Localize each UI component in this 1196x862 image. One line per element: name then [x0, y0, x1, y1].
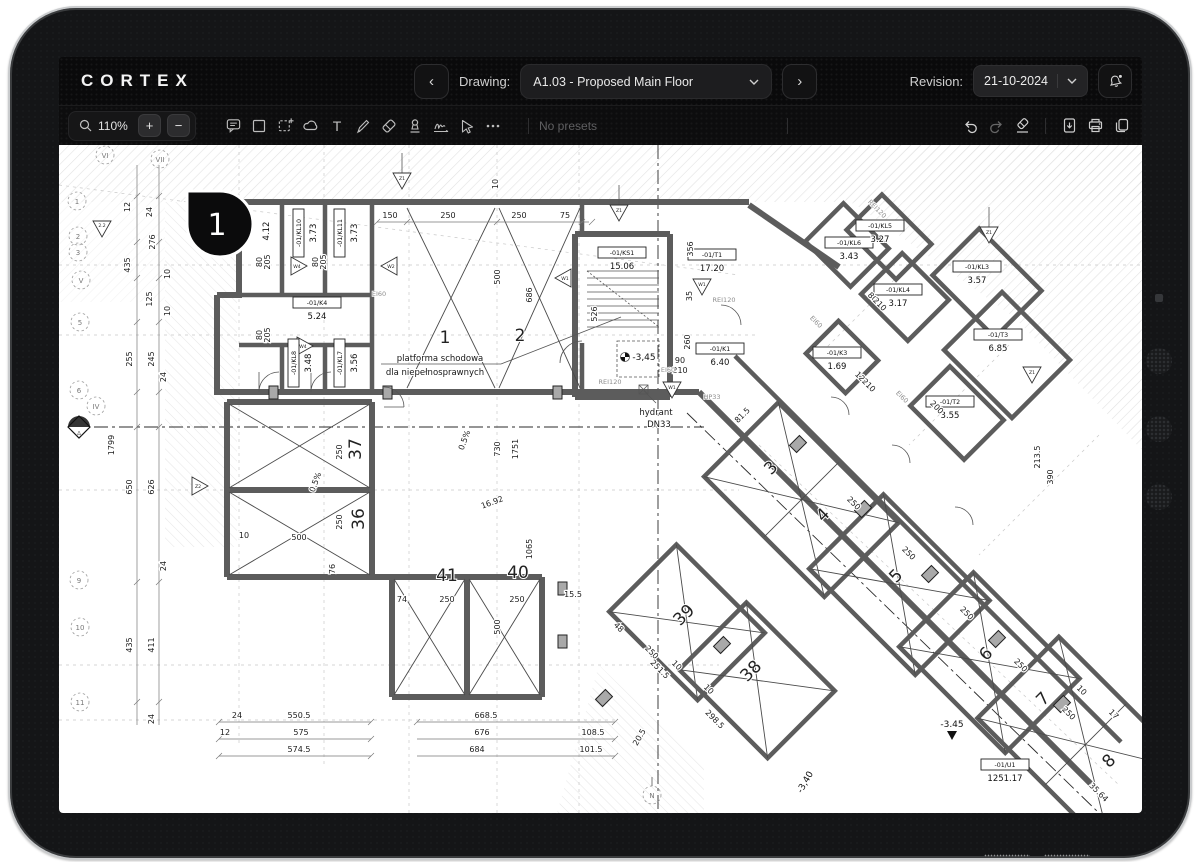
annotation-toolbar: 110% + − T No presets [59, 105, 1142, 145]
drawing-dropdown[interactable]: A1.03 - Proposed Main Floor [520, 64, 772, 99]
svg-text:W4: W4 [293, 264, 301, 270]
room-tag-area: 3.57 [968, 276, 987, 286]
room-number: 6 [975, 643, 997, 665]
app-logo: CORTEX [81, 71, 194, 91]
dim: 24 [145, 207, 154, 217]
grid-label: VII [156, 156, 165, 164]
redo-button[interactable] [983, 113, 1009, 139]
datum-marker: A [68, 416, 90, 438]
dim: 500 [291, 533, 306, 542]
note-hydrant-line2: DN33 [647, 420, 671, 430]
dim: 500 [493, 269, 502, 284]
print-button[interactable] [1082, 113, 1108, 139]
room-tag-area: 6.85 [989, 344, 1008, 354]
room-tag-area: 3.43 [840, 252, 859, 262]
comment-marker-number: 1 [207, 208, 226, 243]
svg-text:Z1: Z1 [986, 230, 992, 236]
room-number: 37 [346, 438, 366, 460]
text-tool-button[interactable]: T [324, 113, 350, 139]
dim: 10 [491, 179, 500, 189]
room-number: 1 [440, 328, 451, 348]
room-tag-id: -01/KL3 [965, 264, 989, 271]
grid-label: 1 [75, 198, 79, 206]
svg-text:W1: W1 [668, 385, 676, 391]
zoom-level: 110% [98, 119, 132, 133]
rectangle-tool-button[interactable] [246, 113, 272, 139]
dim: 1065 [525, 539, 534, 559]
svg-text:N: N [649, 792, 654, 800]
dim: 526 [590, 306, 599, 321]
dim: 500 [493, 619, 502, 634]
svg-text:EI60: EI60 [372, 290, 386, 298]
bezel-sensor [1155, 294, 1163, 302]
room-number: 36 [349, 508, 369, 530]
dim: 75 [560, 211, 570, 220]
svg-text:EI60: EI60 [661, 366, 675, 374]
room-tag-id: -01/K3 [827, 350, 848, 357]
grid-label: 6 [77, 387, 82, 395]
room-tag-area: 5.24 [308, 312, 327, 322]
dim: 250 [439, 595, 454, 604]
dim: 125 [145, 291, 154, 306]
drawing-nav-group: ‹ Drawing: A1.03 - Proposed Main Floor › [414, 64, 817, 99]
room-tag-id: -01/KL8 [291, 351, 298, 375]
dim: 210 [871, 296, 888, 313]
grid-label: V [79, 277, 84, 285]
speaker-grille-right [1044, 854, 1090, 857]
dim: 101.5 [580, 745, 603, 754]
room-tag-area: 6.40 [711, 358, 730, 368]
dim: 250 [335, 444, 344, 459]
note-platform-line1: platforma schodowa [397, 354, 483, 364]
toolbar-right-group [957, 113, 1142, 139]
room-tag-id: -01/KL5 [868, 223, 892, 230]
dim: 255 [125, 351, 134, 366]
room-tag-id: -01/KL7 [337, 351, 344, 375]
clear-annotations-button[interactable] [1009, 113, 1035, 139]
chevron-down-icon [749, 79, 759, 85]
svg-text:W4: W4 [299, 344, 307, 350]
dim: 245 [147, 351, 156, 366]
dim: 10 [163, 269, 172, 279]
room-tag-area: 17.20 [700, 264, 724, 274]
revision-label: Revision: [910, 74, 963, 89]
level-marker-stair: -3,45 [621, 353, 656, 364]
room-tag-id: -01/U1 [994, 762, 1015, 769]
grid-label: 5 [78, 319, 82, 327]
dim: 574.5 [288, 745, 311, 754]
drawing-canvas[interactable]: VI VII 1 2 3 V 5 6 IV 9 10 11 A [59, 145, 1142, 813]
dim: 356 [686, 241, 695, 256]
room-tag-area: 1.69 [828, 362, 847, 372]
grid-label: 9 [77, 577, 81, 585]
room-number: 39 [670, 601, 699, 630]
room-number: 2 [515, 326, 526, 346]
zoom-in-button[interactable]: + [138, 114, 161, 137]
room-tag-area: 1251.17 [987, 774, 1022, 784]
dim: 676 [474, 728, 489, 737]
svg-text:W1: W1 [698, 282, 706, 288]
grid-label: A [77, 430, 82, 438]
room-tag-id: -01/T2 [940, 399, 960, 406]
undo-button[interactable] [957, 113, 983, 139]
page: CORTEX ‹ Drawing: A1.03 - Proposed Main … [0, 0, 1196, 862]
note-hydrant-line1: hydrant [639, 408, 673, 418]
notifications-button[interactable] [1098, 64, 1132, 98]
svg-text:Z1: Z1 [616, 208, 622, 214]
svg-text:Z1: Z1 [1029, 370, 1035, 376]
dim: 205 [263, 327, 272, 342]
toolbar-divider [528, 118, 529, 134]
bezel-dot-1 [1146, 348, 1172, 374]
pointer-tool-button[interactable] [454, 113, 480, 139]
room-tag-id: -01/K4 [307, 300, 328, 307]
dim: 10 [239, 531, 249, 540]
dim: 260 [683, 334, 692, 349]
bezel-dot-3 [1146, 484, 1172, 510]
dim: 435 [123, 257, 132, 272]
room-tag-area: 15.06 [610, 262, 634, 272]
dim: 1751 [511, 439, 520, 459]
grid-label: VI [102, 152, 109, 160]
dim: 1799 [107, 435, 116, 455]
notification-bell-icon [1107, 73, 1124, 90]
svg-text:W2: W2 [387, 264, 395, 270]
room-tag-id: -01/T1 [702, 252, 722, 259]
more-tools-button[interactable] [480, 113, 506, 139]
toolbar-divider [1045, 118, 1046, 134]
room-tag-id: -01/KS1 [610, 250, 635, 257]
room-tag-id: -01/KL10 [296, 219, 303, 247]
toolbar-divider [787, 118, 788, 134]
drawing-dropdown-value: A1.03 - Proposed Main Floor [533, 75, 693, 89]
dim: 550.5 [288, 711, 311, 720]
dim: 250 [335, 514, 344, 529]
dim: 411 [147, 637, 156, 652]
svg-text:REI120: REI120 [713, 296, 736, 304]
grid-label: 10 [76, 624, 85, 632]
dim: 74 [397, 595, 407, 604]
dim: 35 [685, 291, 694, 301]
svg-text:HP33: HP33 [703, 393, 720, 401]
dim: 205 [319, 254, 328, 269]
zoom-out-button[interactable]: − [167, 114, 190, 137]
export-file-button[interactable] [1056, 113, 1082, 139]
eraser-tool-button[interactable] [376, 113, 402, 139]
svg-text:REI120: REI120 [599, 378, 622, 386]
chevron-down-icon [1067, 78, 1077, 84]
room-tag-area: 4.12 [262, 222, 272, 241]
dim: 24 [232, 711, 242, 720]
grid-label: 3 [76, 249, 80, 257]
dim: 10 [163, 306, 172, 316]
dim: 575 [293, 728, 308, 737]
room-number: 38 [737, 657, 766, 686]
dim: 48 [612, 621, 626, 635]
room-tag-id: -01/KL4 [886, 287, 910, 294]
svg-text:2.2: 2.2 [98, 223, 105, 229]
presets-placeholder[interactable]: No presets [539, 119, 597, 133]
room-number: 40 [507, 563, 529, 583]
dim: 650 [125, 479, 134, 494]
zoom-control: 110% + − [68, 111, 196, 141]
svg-text:EI60: EI60 [894, 389, 910, 405]
room-number: 41 [436, 566, 458, 586]
revision-dropdown[interactable]: 21-10-2024 [973, 65, 1088, 97]
room-tag-area: 3.55 [941, 411, 960, 421]
dim: 12 [220, 728, 230, 737]
revision-divider [1057, 74, 1058, 88]
svg-text:-3,45: -3,45 [632, 353, 655, 363]
cloud-tool-button[interactable] [298, 113, 324, 139]
level-marker-ramp: -3,40 [796, 770, 816, 795]
dim: 250 [440, 211, 455, 220]
dim: 250 [509, 595, 524, 604]
grid-label: 2 [76, 233, 80, 241]
pen-tool-button[interactable] [350, 113, 376, 139]
prev-drawing-button[interactable]: ‹ [414, 64, 449, 99]
magnifier-icon [79, 119, 92, 132]
drawing-label: Drawing: [459, 74, 510, 89]
comment-marker[interactable]: 1 [187, 191, 253, 257]
dim: 626 [147, 479, 156, 494]
dim: 24 [159, 561, 168, 571]
dim: 250 [1060, 705, 1077, 722]
room-tag-area: 3.48 [304, 354, 314, 373]
copy-button[interactable] [1108, 113, 1134, 139]
revision-group: Revision: 21-10-2024 [910, 64, 1132, 98]
dim: 16.92 [480, 494, 505, 510]
dim: 730 [493, 441, 502, 456]
bezel-dot-2 [1146, 416, 1172, 442]
room-tag-area: 3.17 [889, 299, 908, 309]
app-header: CORTEX ‹ Drawing: A1.03 - Proposed Main … [59, 57, 1142, 105]
floor-plan-svg: VI VII 1 2 3 V 5 6 IV 9 10 11 A [59, 145, 1142, 813]
signature-tool-button[interactable] [428, 113, 454, 139]
dim: 24 [147, 714, 156, 724]
svg-text:-3.45: -3.45 [940, 720, 963, 730]
dim: 15.5 [564, 590, 582, 599]
dim: 0.5% [457, 429, 473, 452]
dim: 210 [860, 377, 877, 394]
note-platform-line2: dla niepełnosprawnych [386, 368, 484, 378]
dim: 250 [511, 211, 526, 220]
dim: 150 [382, 211, 397, 220]
dim: 76 [328, 564, 337, 574]
dim: 12 [123, 202, 132, 212]
dim: 24 [159, 372, 168, 382]
dim: 90 [675, 356, 685, 365]
room-tag-id: -01/K1 [710, 346, 731, 353]
dim: 668.5 [475, 711, 498, 720]
room-tag-area: 3.73 [350, 224, 360, 243]
room-tag-id: -01/KL6 [837, 240, 861, 247]
next-drawing-button[interactable]: › [782, 64, 817, 99]
svg-text:Z2: Z2 [195, 484, 201, 490]
dim: 81.5 [733, 406, 752, 425]
dim: 276 [148, 234, 157, 249]
marquee-select-tool-button[interactable] [272, 113, 298, 139]
room-tag-area: 3.27 [871, 235, 890, 245]
dim: 686 [525, 287, 534, 302]
svg-text:EI60: EI60 [808, 314, 824, 330]
revision-value: 21-10-2024 [984, 74, 1048, 88]
room-tag-id: -01/T3 [988, 332, 1008, 339]
room-tag-area: 3.73 [309, 224, 319, 243]
svg-text:Z1: Z1 [399, 176, 405, 182]
svg-text:W1: W1 [561, 276, 569, 282]
comment-tool-button[interactable] [220, 113, 246, 139]
room-tag-area: 3.56 [350, 354, 360, 373]
dim: 250 [900, 545, 917, 562]
dim: 108.5 [582, 728, 605, 737]
dim: 17 [1107, 708, 1121, 722]
dim: 205 [263, 254, 272, 269]
app-screen: CORTEX ‹ Drawing: A1.03 - Proposed Main … [59, 57, 1142, 813]
tablet-frame: CORTEX ‹ Drawing: A1.03 - Proposed Main … [8, 6, 1192, 860]
speaker-grille-left [984, 854, 1030, 857]
dim: 213.5 [1033, 446, 1042, 469]
level-marker-yard: -3.45 [940, 720, 963, 740]
stamp-tool-button[interactable] [402, 113, 428, 139]
dim: 435 [125, 637, 134, 652]
dim: 390 [1046, 469, 1055, 484]
grid-label: IV [93, 403, 100, 411]
room-tag-id: -01/KL11 [337, 219, 344, 247]
grid-label: 11 [76, 699, 85, 707]
dim: 684 [469, 745, 484, 754]
